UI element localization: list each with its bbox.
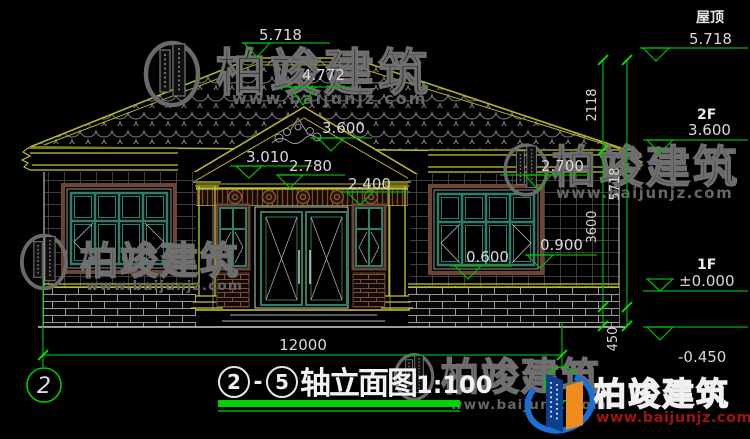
plinth-level: -0.450	[678, 348, 726, 366]
roof-label: 屋顶	[696, 10, 724, 26]
right-roof-annotation: 屋顶 5.718	[640, 10, 748, 61]
entrance-double-door	[255, 207, 348, 308]
drawing-title: 2 - 5 轴立面图 1:100	[218, 366, 492, 411]
title-separator: -	[253, 370, 262, 395]
window-flank-right	[353, 205, 385, 269]
level-value: 5.718	[259, 26, 302, 44]
axis-bubble-left: 2	[27, 368, 61, 402]
title-underline	[218, 400, 460, 407]
level-value: 2.780	[289, 157, 332, 175]
watermark-left: 柏竣建筑 www.baijunjz.com	[22, 236, 243, 294]
dim-overall-width: 12000	[279, 336, 327, 354]
porch-steps	[196, 310, 410, 321]
level-value: 4.772	[302, 66, 345, 84]
brand-logo: 柏竣建筑 www.baijunjz.com	[520, 367, 750, 439]
panel-under-flank-right	[353, 273, 385, 307]
dim-f2-ground: 3600	[585, 210, 600, 243]
title-scale: 1:100	[416, 371, 492, 399]
dim-plinth: 450	[606, 327, 621, 352]
brand-logo-name: 柏竣建筑	[594, 375, 730, 413]
dim-total-height: 5718	[608, 167, 623, 200]
floor2-level: 3.600	[688, 121, 731, 139]
cornice-left	[22, 147, 178, 171]
watermark-top: 柏竣建筑 www.baijunjz.com	[146, 43, 432, 108]
watermark-site: www.baijunjz.com	[232, 89, 427, 108]
level-value: 3.010	[246, 148, 289, 166]
watermark-site: www.baijunjz.com	[86, 278, 243, 294]
floor1-label: 1F	[697, 257, 716, 273]
level-value: 0.900	[540, 236, 583, 254]
level-value: 0.600	[466, 248, 509, 266]
dim-roof-to-f2: 2118	[585, 88, 600, 121]
roof-level: 5.718	[689, 30, 732, 48]
floor1-level: ±0.000	[679, 272, 735, 290]
level-value: 2.400	[348, 175, 391, 193]
level-value: 2.700	[541, 157, 584, 175]
right-floor1-annotation: 1F ±0.000	[643, 257, 748, 291]
level-value: 3.600	[322, 119, 365, 137]
axis-number: 2	[37, 374, 51, 399]
brand-logo-site: www.baijunjz.com	[596, 410, 750, 426]
title-axis-end: 5	[275, 370, 289, 394]
cad-elevation-screenshot: 柏竣建筑 www.baijunjz.com 柏竣建筑 www.baijunjz.…	[0, 0, 750, 439]
title-name: 轴立面图	[300, 366, 416, 402]
watermark-brand: 柏竣建筑	[80, 239, 240, 283]
watermark-site: www.baijunjz.com	[556, 184, 733, 202]
elevation-drawing-canvas: 柏竣建筑 www.baijunjz.com 柏竣建筑 www.baijunjz.…	[0, 0, 750, 439]
right-plinth-annotation: -0.450	[643, 327, 748, 366]
title-axis-start: 2	[227, 370, 241, 394]
